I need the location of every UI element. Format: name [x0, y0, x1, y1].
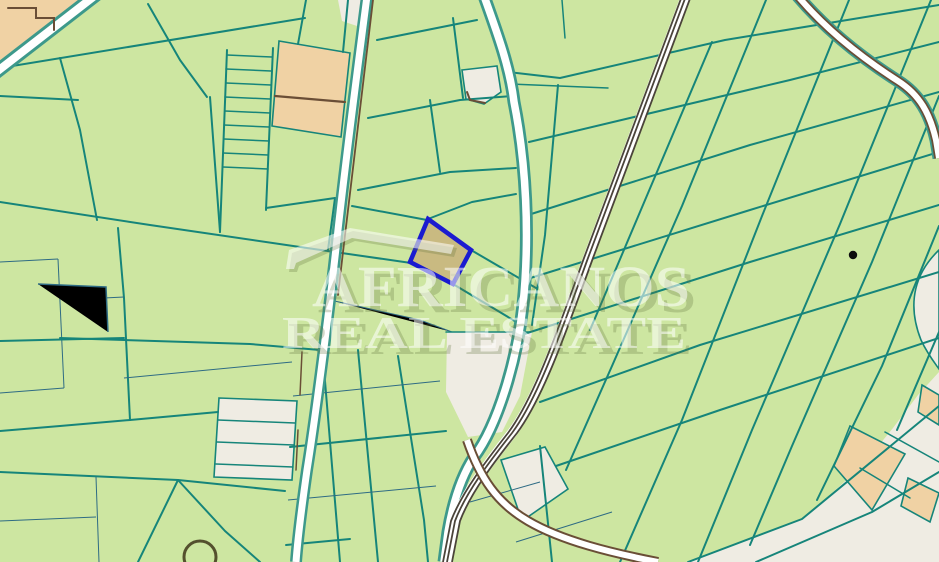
poi-dot: [849, 251, 857, 259]
map-canvas[interactable]: AFRICANOS REAL ESTATE AFRICANOS REAL EST…: [0, 0, 939, 562]
map-viewport[interactable]: AFRICANOS REAL ESTATE AFRICANOS REAL EST…: [0, 0, 939, 562]
watermark-line2: REAL ESTATE: [282, 307, 686, 358]
